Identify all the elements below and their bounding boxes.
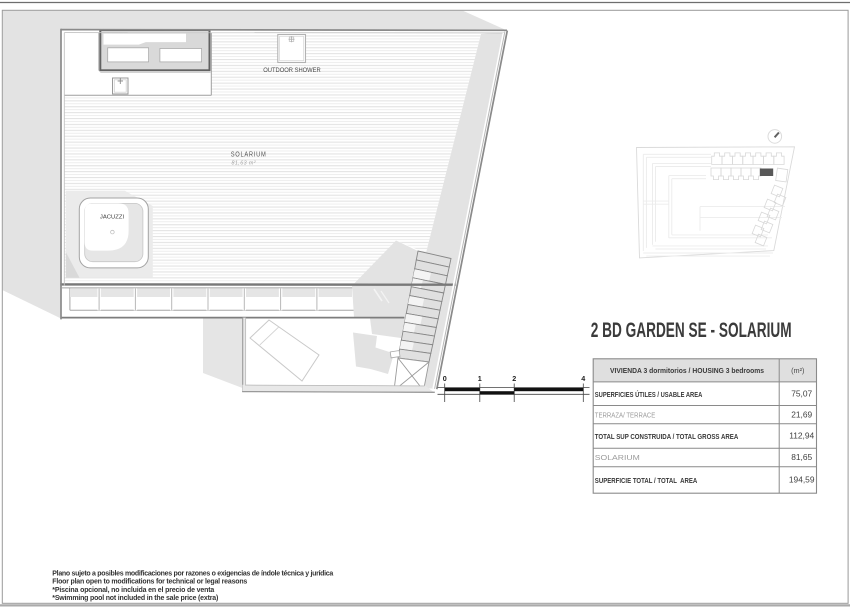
svg-text:4: 4 (581, 374, 585, 383)
svg-text:*Piscina opcional, no incluida: *Piscina opcional, no incluida en el pre… (52, 587, 214, 594)
svg-text:Plano sujeto a posibles modifi: Plano sujeto a posibles modificaciones p… (52, 570, 333, 577)
svg-text:TERRAZA/ TERRACE: TERRAZA/ TERRACE (595, 410, 656, 419)
svg-text:2 BD GARDEN SE - SOLARIUM: 2 BD GARDEN SE - SOLARIUM (591, 318, 792, 342)
svg-text:*Swimming pool not included in: *Swimming pool not included in the sale … (52, 595, 218, 602)
svg-text:VIVIENDA 3 dormitorios / HOUSI: VIVIENDA 3 dormitorios / HOUSING 3 bedro… (610, 366, 764, 375)
svg-text:194,59: 194,59 (789, 475, 815, 485)
svg-text:1: 1 (478, 374, 482, 383)
svg-text:SUPERFICIES ÚTILES / USABLE AR: SUPERFICIES ÚTILES / USABLE AREA (595, 390, 703, 399)
svg-text:0: 0 (443, 374, 447, 383)
svg-text:81,63 m²: 81,63 m² (232, 160, 256, 166)
svg-text:SUPERFICIE TOTAL / TOTAL AREA: SUPERFICIE TOTAL / TOTAL AREA (595, 478, 698, 485)
svg-text:OUTDOOR SHOWER: OUTDOOR SHOWER (263, 67, 321, 74)
svg-text:Floor plan open to modificatio: Floor plan open to modifications for tec… (52, 579, 247, 586)
svg-text:JACUZZI: JACUZZI (100, 214, 125, 220)
svg-text:TOTAL SUP CONSTRUIDA / TOTAL G: TOTAL SUP CONSTRUIDA / TOTAL GROSS AREA (595, 434, 739, 441)
svg-text:112,94: 112,94 (789, 431, 814, 441)
svg-text:(m²): (m²) (791, 366, 804, 375)
svg-text:75,07: 75,07 (791, 388, 812, 398)
svg-text:81,65: 81,65 (791, 452, 812, 462)
svg-text:21,69: 21,69 (791, 409, 812, 419)
svg-text:2: 2 (512, 374, 516, 383)
svg-text:SOLARIUM: SOLARIUM (231, 150, 267, 159)
svg-text:SOLARIUM: SOLARIUM (595, 453, 640, 462)
